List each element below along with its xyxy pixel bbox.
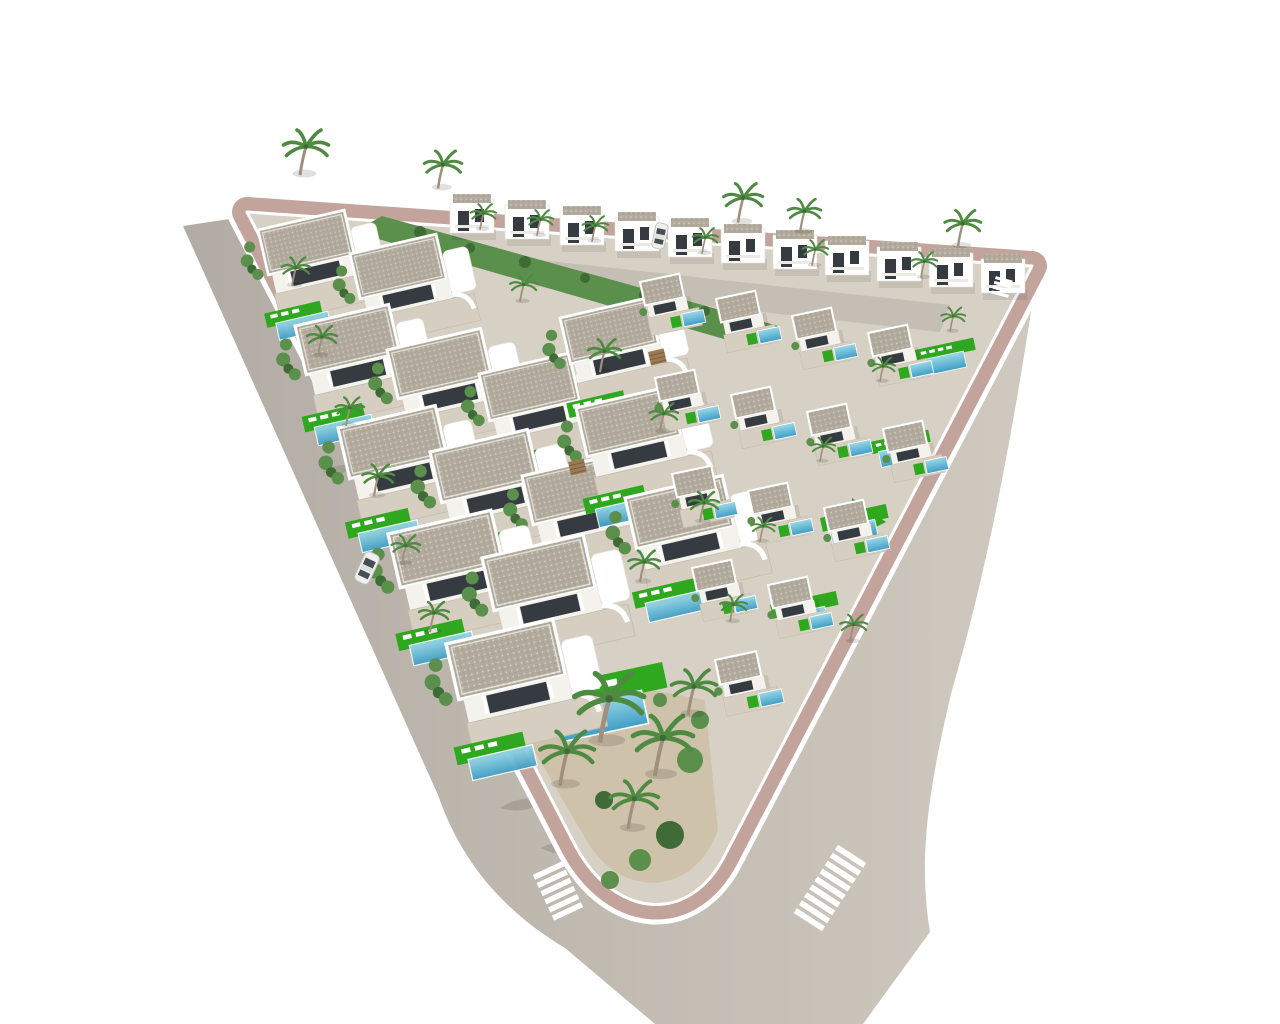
architectural-render: [0, 0, 1280, 1024]
two-story-villa: [929, 248, 975, 294]
two-story-villa: [981, 254, 1027, 300]
two-story-villa: [721, 224, 767, 270]
two-story-villa: [505, 200, 551, 246]
aerial-villa-development-scene: [0, 0, 1280, 1024]
two-story-villa: [773, 230, 819, 276]
palm-tree: [424, 151, 462, 191]
palm-tree: [788, 199, 821, 234]
two-story-villa: [668, 218, 714, 264]
two-story-villa: [825, 236, 871, 282]
palm-tree: [284, 130, 329, 177]
palm-tree: [724, 184, 763, 225]
two-story-villa: [560, 206, 606, 252]
